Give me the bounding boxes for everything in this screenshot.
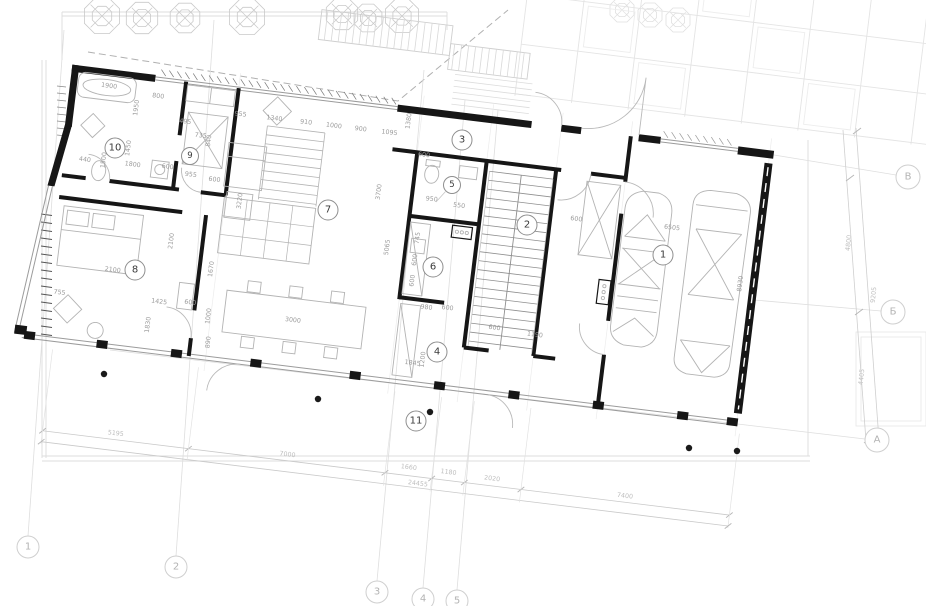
garage-car-1 — [608, 189, 674, 349]
dim-label: 600 — [184, 299, 197, 307]
dim-label: 1180 — [440, 468, 457, 477]
dim-label: 980 — [420, 303, 433, 311]
tree-icon — [326, 0, 357, 30]
svg-text:5: 5 — [449, 180, 454, 190]
north-wall-segment — [72, 65, 156, 82]
room-bubble-4: 4 — [427, 342, 447, 362]
wc-sink — [459, 166, 478, 180]
grid-bubble-2: 2 — [165, 556, 187, 578]
dim-label: 550 — [453, 202, 466, 210]
chair — [289, 286, 303, 299]
dim-label: 1950 — [132, 99, 141, 116]
dim-label: 1000 — [325, 122, 342, 131]
garage-north-pier — [638, 134, 661, 144]
svg-text:11: 11 — [410, 416, 423, 427]
dim-label: 600 — [411, 253, 419, 266]
south-wall-line — [22, 334, 737, 422]
grid-bubble-3: 3 — [366, 581, 388, 603]
dim-label: 1425 — [151, 298, 168, 307]
dim-label: 3220 — [236, 193, 245, 210]
dim-label: 3700 — [375, 184, 384, 201]
svg-text:Б: Б — [890, 307, 897, 318]
chair — [240, 336, 254, 349]
dim-label: 800 — [152, 92, 165, 100]
radiator — [596, 279, 611, 304]
floor-plan-drawing: 1900800195049573514501800600440950955600… — [0, 0, 926, 606]
terrace-column-dot — [686, 445, 692, 451]
grid-bubble-v: В — [896, 165, 920, 189]
chair — [330, 291, 344, 304]
dim-label: 910 — [300, 118, 313, 126]
dim-label: 2100 — [104, 266, 121, 275]
svg-text:4: 4 — [434, 347, 440, 358]
roof-overhang-dashed-line — [88, 10, 508, 101]
room-bubble-10: 10 — [105, 138, 125, 158]
dim-label: 600 — [488, 324, 501, 332]
svg-text:10: 10 — [109, 143, 122, 154]
room-bubble-6: 6 — [423, 257, 443, 277]
toilet — [424, 164, 440, 184]
dim-label: 890 — [204, 336, 212, 349]
dim-label: 495 — [179, 118, 192, 126]
south-wall-line2 — [22, 338, 737, 426]
svg-text:А: А — [874, 435, 881, 446]
terrace-column-dot — [315, 396, 321, 402]
svg-text:2: 2 — [524, 220, 530, 231]
room-bubble-3: 3 — [452, 130, 472, 150]
west-wall-room8-inner — [14, 184, 48, 335]
dim-label: 1190 — [527, 331, 544, 340]
dim-label: 1900 — [101, 82, 118, 91]
dim-label: 1660 — [400, 463, 417, 472]
deco-layer — [11, 57, 778, 529]
room-bubble-9: 9 — [182, 148, 199, 165]
armchair — [53, 295, 81, 323]
dim-label: 5065 — [383, 239, 392, 256]
svg-text:1: 1 — [660, 250, 666, 261]
dim-label: 1450 — [124, 140, 133, 157]
dim-label: 7000 — [279, 450, 296, 459]
dim-label: 600 — [408, 274, 416, 287]
svg-text:3: 3 — [374, 587, 380, 598]
pouf — [86, 321, 104, 339]
dim-label: 9205 — [870, 287, 879, 304]
dim-label: 6505 — [664, 223, 681, 232]
ne-corner-wall — [737, 146, 774, 158]
right-dimension-labels: 480044059205 — [843, 128, 882, 443]
grid-bubble-1: 1 — [17, 536, 39, 558]
entry-door-arc — [532, 92, 565, 125]
dim-label: 955 — [234, 110, 247, 118]
chair — [282, 341, 296, 354]
dim-label: 600 — [570, 215, 583, 223]
dim-label: 600 — [208, 176, 221, 184]
boardwalk-hatch — [312, 10, 538, 114]
dim-label: 1670 — [207, 261, 216, 278]
dim-label: 840 — [205, 134, 213, 147]
grid-axis-bubbles: 1 2 3 4 5 В Б А — [17, 165, 920, 606]
dim-label: 1200 — [419, 351, 428, 368]
furniture-layer — [48, 72, 758, 416]
dim-label: 2020 — [484, 474, 501, 483]
dim-label: 1380 — [405, 113, 414, 130]
pillow — [92, 213, 116, 230]
chair — [324, 347, 338, 360]
dim-label: 8930 — [736, 275, 745, 292]
svg-text:5: 5 — [454, 596, 460, 606]
paver-square-inner — [861, 337, 921, 421]
pillow — [66, 210, 90, 227]
floor-plan-page: 1900800195049573514501800600440950955600… — [0, 0, 926, 606]
terrace-column-dot — [101, 371, 107, 377]
room-bubble-1: 1 — [653, 245, 673, 265]
dim-label: 755 — [53, 289, 66, 297]
terrace-column-dot — [734, 448, 740, 454]
svg-text:В: В — [905, 172, 912, 183]
dim-label: 5195 — [107, 429, 124, 438]
dim-label: 2100 — [167, 233, 176, 250]
svg-text:6: 6 — [430, 262, 436, 273]
grid-bubble-b: Б — [881, 300, 905, 324]
svg-text:2: 2 — [173, 562, 179, 573]
dim-label: 1800 — [124, 160, 141, 169]
room-bubble-8: 8 — [125, 260, 145, 280]
dim-label: 1095 — [381, 128, 398, 137]
paver-grid — [515, 0, 926, 147]
dim-label: 900 — [354, 125, 367, 133]
dim-label: 1340 — [266, 114, 283, 123]
toilet-tank — [426, 160, 441, 168]
room-bubble-11: 11 — [406, 411, 426, 431]
dim-label: 950 — [425, 195, 438, 203]
dim-label: 600 — [441, 304, 454, 312]
dim-label: 440 — [78, 156, 91, 164]
dim-label: 7400 — [617, 492, 634, 501]
chair — [247, 281, 261, 294]
svg-text:8: 8 — [132, 265, 138, 276]
entry-pier — [561, 125, 582, 134]
svg-text:9: 9 — [187, 151, 192, 161]
dim-label: 600 — [418, 151, 431, 159]
dim-label: 600 — [161, 163, 174, 171]
svg-text:7: 7 — [325, 205, 331, 216]
svg-text:3: 3 — [459, 135, 465, 146]
svg-text:4: 4 — [420, 594, 426, 605]
tree-icon — [84, 0, 119, 34]
dim-label: 1830 — [144, 316, 153, 333]
room-bubble-7: 7 — [318, 200, 338, 220]
terrace-column-dot — [427, 409, 433, 415]
svg-text:1: 1 — [25, 542, 31, 553]
room-bubble-2: 2 — [517, 215, 537, 235]
grid-bubble-a: А — [865, 428, 889, 452]
grid-bubble-4: 4 — [412, 588, 434, 606]
west-wall-top — [65, 65, 80, 127]
site-layer — [28, 0, 926, 590]
dim-label: 745 — [414, 232, 422, 245]
dim-label: 955 — [184, 171, 197, 179]
laundry-basket — [81, 114, 105, 138]
dim-label: 3000 — [284, 316, 301, 325]
dim-label: 1000 — [204, 308, 213, 325]
interior-partitions — [38, 68, 663, 442]
grid-bubble-5: 5 — [446, 590, 468, 606]
paver-square — [856, 332, 926, 426]
